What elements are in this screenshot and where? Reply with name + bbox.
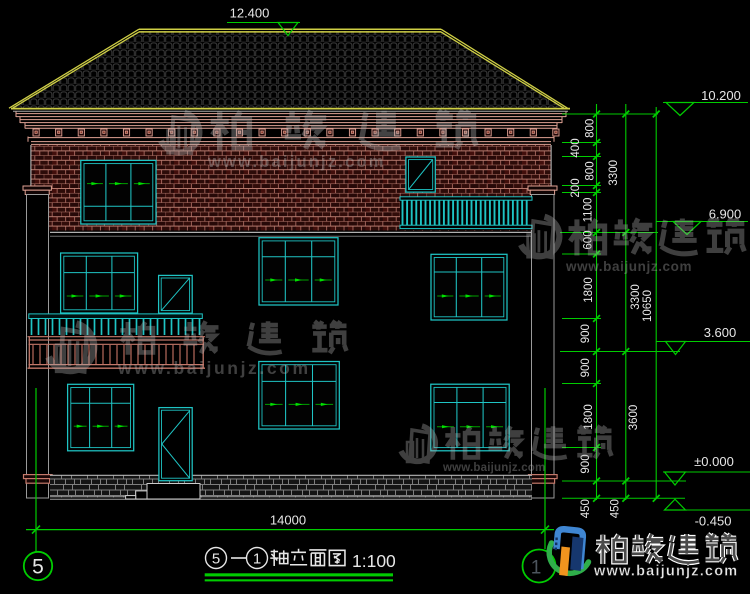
svg-text:3300: 3300 <box>608 160 620 186</box>
svg-text:1100: 1100 <box>583 198 595 223</box>
svg-text:www.baijunjz.com: www.baijunjz.com <box>442 462 545 474</box>
svg-text:5: 5 <box>212 551 220 568</box>
svg-text:200: 200 <box>570 178 582 197</box>
svg-text:-0.450: -0.450 <box>695 514 732 529</box>
svg-text:www.baijunjz.com: www.baijunjz.com <box>565 259 692 274</box>
svg-text:1:100: 1:100 <box>352 551 396 571</box>
svg-text:10650: 10650 <box>642 290 654 322</box>
svg-text:www.baijunjz.com: www.baijunjz.com <box>117 358 311 378</box>
svg-text:12.400: 12.400 <box>230 6 270 21</box>
svg-text:±0.000: ±0.000 <box>694 454 734 469</box>
svg-text:800: 800 <box>585 161 597 180</box>
svg-text:10.200: 10.200 <box>701 88 741 103</box>
svg-text:3.600: 3.600 <box>704 325 737 340</box>
svg-text:450: 450 <box>610 499 622 518</box>
svg-text:1800: 1800 <box>583 277 595 303</box>
svg-text:400: 400 <box>570 138 582 157</box>
svg-text:800: 800 <box>585 119 597 138</box>
svg-text:14000: 14000 <box>270 513 306 528</box>
svg-text:3300: 3300 <box>630 284 642 310</box>
svg-text:900: 900 <box>580 358 592 377</box>
svg-text:3600: 3600 <box>628 405 640 431</box>
svg-text:900: 900 <box>580 324 592 343</box>
svg-text:www.baijunjz.com: www.baijunjz.com <box>207 153 386 171</box>
svg-text:www.baijunjz.com: www.baijunjz.com <box>593 564 738 580</box>
svg-text:450: 450 <box>580 499 592 518</box>
svg-text:1: 1 <box>531 558 542 579</box>
svg-text:1: 1 <box>253 551 261 568</box>
svg-text:5: 5 <box>32 556 44 579</box>
